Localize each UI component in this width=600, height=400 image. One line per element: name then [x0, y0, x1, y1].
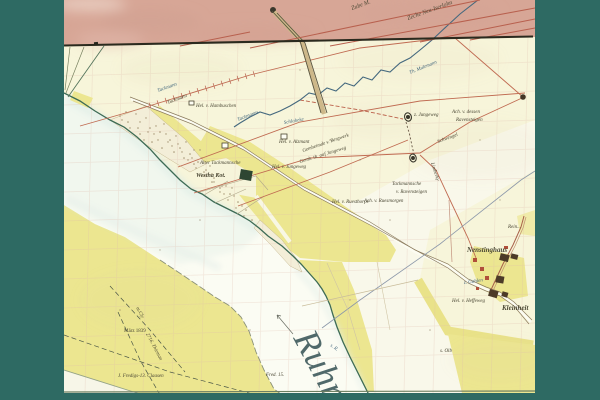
svg-text:März 1839: März 1839 [124, 329, 146, 334]
svg-text:Tackmannsche: Tackmannsche [392, 182, 422, 187]
svg-text:Ach. v. Ruesmorgen: Ach. v. Ruesmorgen [363, 199, 404, 204]
svg-text:Hel. v. Hambuschen: Hel. v. Hambuschen [195, 104, 237, 109]
svg-text:Ach. v. dessen: Ach. v. dessen [451, 110, 480, 115]
svg-text:Hel. v. Heffeweg: Hel. v. Heffeweg [451, 299, 485, 304]
svg-text:z. Jungeweg: z. Jungeweg [413, 113, 439, 118]
svg-text:Hel. v. Jungeweg: Hel. v. Jungeweg [271, 165, 307, 170]
svg-text:Westha Kot.: Westha Kot. [196, 173, 226, 179]
svg-text:s. Olb: s. Olb [440, 349, 452, 354]
svg-text:Fred. 15.: Fred. 15. [265, 373, 284, 378]
svg-text:Ravensteigen: Ravensteigen [455, 118, 483, 123]
svg-text:Kleinheit: Kleinheit [501, 304, 530, 312]
svg-text:Rein...: Rein... [507, 225, 521, 230]
svg-text:Hel. v. Alzmant: Hel. v. Alzmant [278, 140, 310, 145]
svg-text:Nenstinghaus: Nenstinghaus [466, 246, 507, 254]
svg-text:J. Fredigs-13. Claasen: J. Fredigs-13. Claasen [118, 374, 164, 379]
svg-text:v. Ravensteigen: v. Ravensteigen [396, 190, 428, 195]
svg-text:Alter Tackmannsche: Alter Tackmannsche [199, 161, 241, 166]
